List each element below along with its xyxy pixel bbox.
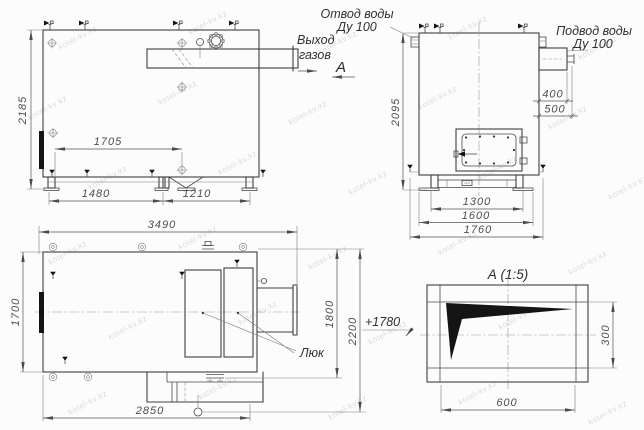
valve-icon	[434, 24, 443, 34]
dim-length: 3490	[148, 219, 176, 231]
fitting-icon	[49, 243, 57, 252]
water-inlet-callout: Подвод воды Ду 100	[556, 24, 632, 51]
watermark-text: kotel-kv.kz	[477, 154, 519, 182]
detail-view: А (1:5) 300 600	[420, 267, 617, 413]
valve-icon	[518, 24, 527, 34]
drain-tap-icon	[62, 357, 67, 364]
center-axis	[420, 277, 596, 390]
dim-right-inner: 1800	[324, 300, 336, 328]
watermark-text: kotel-kv.kz	[607, 174, 644, 202]
drain-tap-icon	[540, 165, 545, 172]
dim-span-left: 1480	[82, 188, 110, 200]
watermark-text: kotel-kv.kz	[327, 394, 369, 422]
side-view-body	[39, 30, 298, 177]
hatch-label: Люк	[299, 346, 325, 360]
datum-target-icon	[177, 38, 188, 49]
fitting-icon	[239, 243, 247, 252]
watermark-text: kotel-kv.kz	[67, 389, 109, 417]
watermark-text: kotel-kv.kz	[587, 399, 629, 427]
water-inlet-dn: Ду 100	[571, 37, 613, 51]
sensor-boss	[197, 39, 204, 59]
gas-label-line2: газов	[299, 48, 331, 62]
dim-bottom: 2850	[135, 405, 164, 417]
dim-inner: 1705	[94, 136, 122, 148]
datum-target-icon	[47, 38, 58, 49]
watermark-text: kotel-kv.kz	[57, 24, 99, 52]
flue-slot	[446, 303, 573, 360]
drain-tap-icon	[50, 272, 55, 279]
watermark-text: kotel-kv.kz	[157, 79, 199, 107]
fitting-icon	[84, 372, 92, 381]
detail-title: А (1:5)	[487, 267, 529, 282]
watermark-text: kotel-kv.kz	[567, 249, 609, 277]
valve-icon	[419, 24, 428, 34]
front-view: 2095 400 500 1300 1600 1760 Отвод воды Д…	[320, 7, 631, 240]
dim-base-2: 1600	[462, 210, 490, 222]
dim-inlet-1: 400	[542, 89, 563, 101]
drain-pipe	[194, 408, 202, 416]
water-inlet-label: Подвод воды	[556, 24, 632, 38]
drain-tap-icon	[149, 170, 154, 177]
dim-width: 1700	[10, 298, 22, 326]
dim-height: 2185	[17, 96, 29, 125]
dim-base-1: 1300	[463, 196, 491, 208]
side-port	[257, 278, 267, 283]
top-flange	[202, 242, 214, 250]
drain-tap-icon	[407, 165, 412, 172]
side-view-dimensions: 2185 1705 1480 1210	[17, 30, 250, 205]
fitting-icon	[49, 372, 57, 381]
watermark-text: kotel-kv.kz	[417, 84, 459, 112]
fitting-icon	[138, 243, 146, 252]
dim-width: 600	[496, 397, 517, 409]
watermark-text: kotel-kv.kz	[107, 314, 149, 342]
drain-tap-icon	[84, 170, 89, 177]
watermark-text: kotel-kv.kz	[27, 94, 69, 122]
valve-icon	[173, 21, 182, 31]
door-hinge	[520, 137, 527, 143]
burner-flange	[39, 292, 44, 333]
front-view-dimensions: 2095 400 500 1300 1600 1760	[390, 33, 578, 240]
water-outlet-label: Отвод воды	[320, 7, 393, 21]
side-view-legs	[44, 177, 257, 191]
dim-base-3: 1760	[464, 224, 492, 236]
drain-tap-icon	[234, 260, 239, 267]
watermark-text: kotel-kv.kz	[347, 169, 389, 197]
section-letter: А	[335, 59, 346, 76]
gas-label-line1: Выход	[297, 33, 335, 47]
door-handle	[454, 151, 477, 157]
boiler-technical-drawing: kotel-kv.kz kotel-kv.kz kotel-kv.kz kote…	[0, 0, 644, 430]
section-mark: А	[332, 59, 355, 77]
valve-icon	[44, 21, 53, 31]
dim-right-outer: 2200	[347, 317, 359, 346]
elevation-value: +1780	[365, 315, 400, 329]
drawing-sheet: kotel-kv.kz kotel-kv.kz kotel-kv.kz kote…	[0, 0, 644, 430]
gas-outlet-label: Выход газов	[297, 33, 335, 62]
watermark-text: kotel-kv.kz	[237, 299, 279, 327]
dim-height: 300	[600, 324, 612, 345]
bolted-flange-icon	[207, 32, 224, 49]
drain-tap-icon	[49, 170, 54, 177]
valve-icon	[229, 21, 238, 31]
watermark-text: kotel-kv.kz	[177, 224, 219, 252]
water-outlet-dn: Ду 100	[335, 20, 377, 34]
watermark-text: kotel-kv.kz	[457, 379, 499, 407]
watermark-text: kotel-kv.kz	[187, 9, 229, 37]
front-view-legs	[419, 175, 533, 191]
datum-target-icon	[48, 128, 59, 139]
dim-height: 2095	[390, 98, 402, 127]
watermark-text: kotel-kv.kz	[307, 244, 349, 272]
dim-span-right: 1210	[183, 188, 211, 200]
burner-flange	[39, 131, 44, 169]
watermark-text: kotel-kv.kz	[217, 149, 259, 177]
door-hinge	[520, 158, 527, 164]
drain-tap-icon	[179, 272, 184, 279]
watermark-text: kotel-kv.kz	[447, 14, 489, 42]
watermark-text: kotel-kv.kz	[287, 99, 329, 127]
dim-inlet-2: 500	[544, 104, 565, 116]
hatch-door	[454, 129, 527, 171]
drain-tap-icon	[260, 170, 265, 177]
